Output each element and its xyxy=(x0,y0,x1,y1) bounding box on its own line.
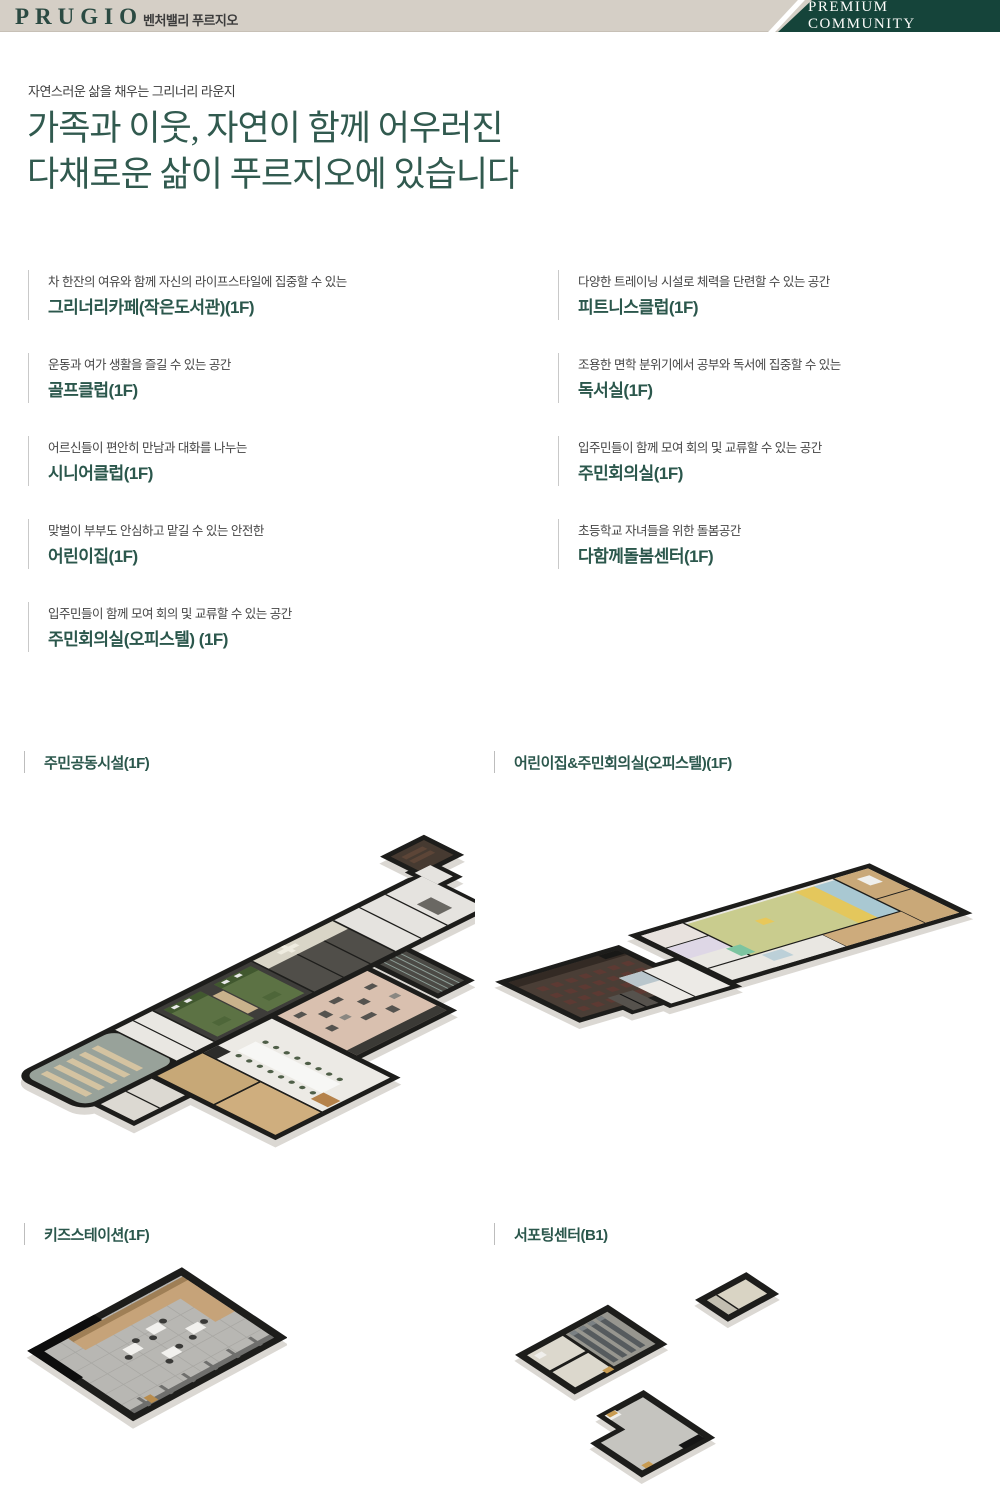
facility-desc: 차 한잔의 여유와 함께 자신의 라이프스타일에 집중할 수 있는 xyxy=(48,270,558,290)
plan-label-kids-station: 키즈스테이션(1F) xyxy=(24,1222,149,1246)
plan-label-supporting-center: 서포팅센터(B1) xyxy=(494,1222,608,1246)
facility-desc: 어르신들이 편안히 만남과 대화를 나누는 xyxy=(48,436,558,456)
facility-item-senior-club: 어르신들이 편안히 만남과 대화를 나누는 시니어클럽(1F) xyxy=(28,436,558,486)
plan-label-text: 서포팅센터(B1) xyxy=(514,1224,608,1245)
label-bar xyxy=(494,751,495,773)
facility-item-fitness-club: 다양한 트레이닝 시설로 체력을 단련할 수 있는 공간 피트니스클럽(1F) xyxy=(558,270,974,320)
facility-item-daycare: 맞벌이 부부도 안심하고 맡길 수 있는 안전한 어린이집(1F) xyxy=(28,519,558,569)
premium-community-badge: PREMIUM COMMUNITY xyxy=(778,0,1000,32)
facility-name: 골프클럽(1F) xyxy=(48,376,558,403)
label-bar xyxy=(494,1223,495,1245)
facility-desc: 입주민들이 함께 모여 회의 및 교류할 수 있는 공간 xyxy=(578,436,974,456)
floorplan-kids-station xyxy=(25,1256,287,1444)
facility-name: 주민회의실(오피스텔) (1F) xyxy=(48,625,558,652)
premium-community-badge-label: PREMIUM COMMUNITY xyxy=(808,0,1000,33)
facility-name: 그리너리카페(작은도서관)(1F) xyxy=(48,293,558,320)
facility-desc: 맞벌이 부부도 안심하고 맡길 수 있는 안전한 xyxy=(48,519,558,539)
facility-name: 독서실(1F) xyxy=(578,376,974,403)
brand-subtitle: 벤처밸리 푸르지오 xyxy=(143,10,238,29)
plan-label-text: 어린이집&주민회의실(오피스텔)(1F) xyxy=(514,752,732,773)
facility-desc: 초등학교 자녀들을 위한 돌봄공간 xyxy=(578,519,974,539)
brochure-page: PRUGIO 벤처밸리 푸르지오 PREMIUM COMMUNITY 자연스러운… xyxy=(0,0,1000,1502)
floorplan-community-1f xyxy=(5,822,475,1157)
facility-name: 시니어클럽(1F) xyxy=(48,459,558,486)
facility-list: 차 한잔의 여유와 함께 자신의 라이프스타일에 집중할 수 있는 그리너리카페… xyxy=(28,270,974,652)
floorplan-supporting-center xyxy=(505,1255,802,1502)
facility-desc: 다양한 트레이닝 시설로 체력을 단련할 수 있는 공간 xyxy=(578,270,974,290)
facility-item-care-center: 초등학교 자녀들을 위한 돌봄공간 다함께돌봄센터(1F) xyxy=(558,519,974,569)
facility-name: 주민회의실(1F) xyxy=(578,459,974,486)
floorplan-daycare-officetel xyxy=(480,832,995,1077)
facility-desc: 조용한 면학 분위기에서 공부와 독서에 집중할 수 있는 xyxy=(578,353,974,373)
facility-item-golf-club: 운동과 여가 생활을 즐길 수 있는 공간 골프클럽(1F) xyxy=(28,353,558,403)
plan-label-community: 주민공동시설(1F) xyxy=(24,750,149,774)
facility-desc: 운동과 여가 생활을 즐길 수 있는 공간 xyxy=(48,353,558,373)
facility-item-reading-room: 조용한 면학 분위기에서 공부와 독서에 집중할 수 있는 독서실(1F) xyxy=(558,353,974,403)
label-bar xyxy=(24,1223,25,1245)
plan-label-text: 키즈스테이션(1F) xyxy=(44,1224,149,1245)
plan-label-daycare-officetel: 어린이집&주민회의실(오피스텔)(1F) xyxy=(494,750,732,774)
facility-name: 어린이집(1F) xyxy=(48,542,558,569)
facility-name: 다함께돌봄센터(1F) xyxy=(578,542,974,569)
facility-item-greenery-cafe: 차 한잔의 여유와 함께 자신의 라이프스타일에 집중할 수 있는 그리너리카페… xyxy=(28,270,558,320)
label-bar xyxy=(24,751,25,773)
page-title-line2: 다채로운 삶이 푸르지오에 있습니다 xyxy=(27,152,518,198)
facility-item-resident-meeting-room: 입주민들이 함께 모여 회의 및 교류할 수 있는 공간 주민회의실(1F) xyxy=(558,436,974,486)
plan-label-text: 주민공동시설(1F) xyxy=(44,752,149,773)
facility-name: 피트니스클럽(1F) xyxy=(578,293,974,320)
page-title-line1: 가족과 이웃, 자연이 함께 어우러진 xyxy=(27,106,518,152)
prugio-logo: PRUGIO xyxy=(15,4,143,30)
page-title: 가족과 이웃, 자연이 함께 어우러진 다채로운 삶이 푸르지오에 있습니다 xyxy=(27,106,518,198)
facility-desc: 입주민들이 함께 모여 회의 및 교류할 수 있는 공간 xyxy=(48,602,558,622)
eyebrow-text: 자연스러운 삶을 채우는 그리너리 라운지 xyxy=(28,81,235,100)
facility-item-officetel-meeting-room: 입주민들이 함께 모여 회의 및 교류할 수 있는 공간 주민회의실(오피스텔)… xyxy=(28,602,558,652)
